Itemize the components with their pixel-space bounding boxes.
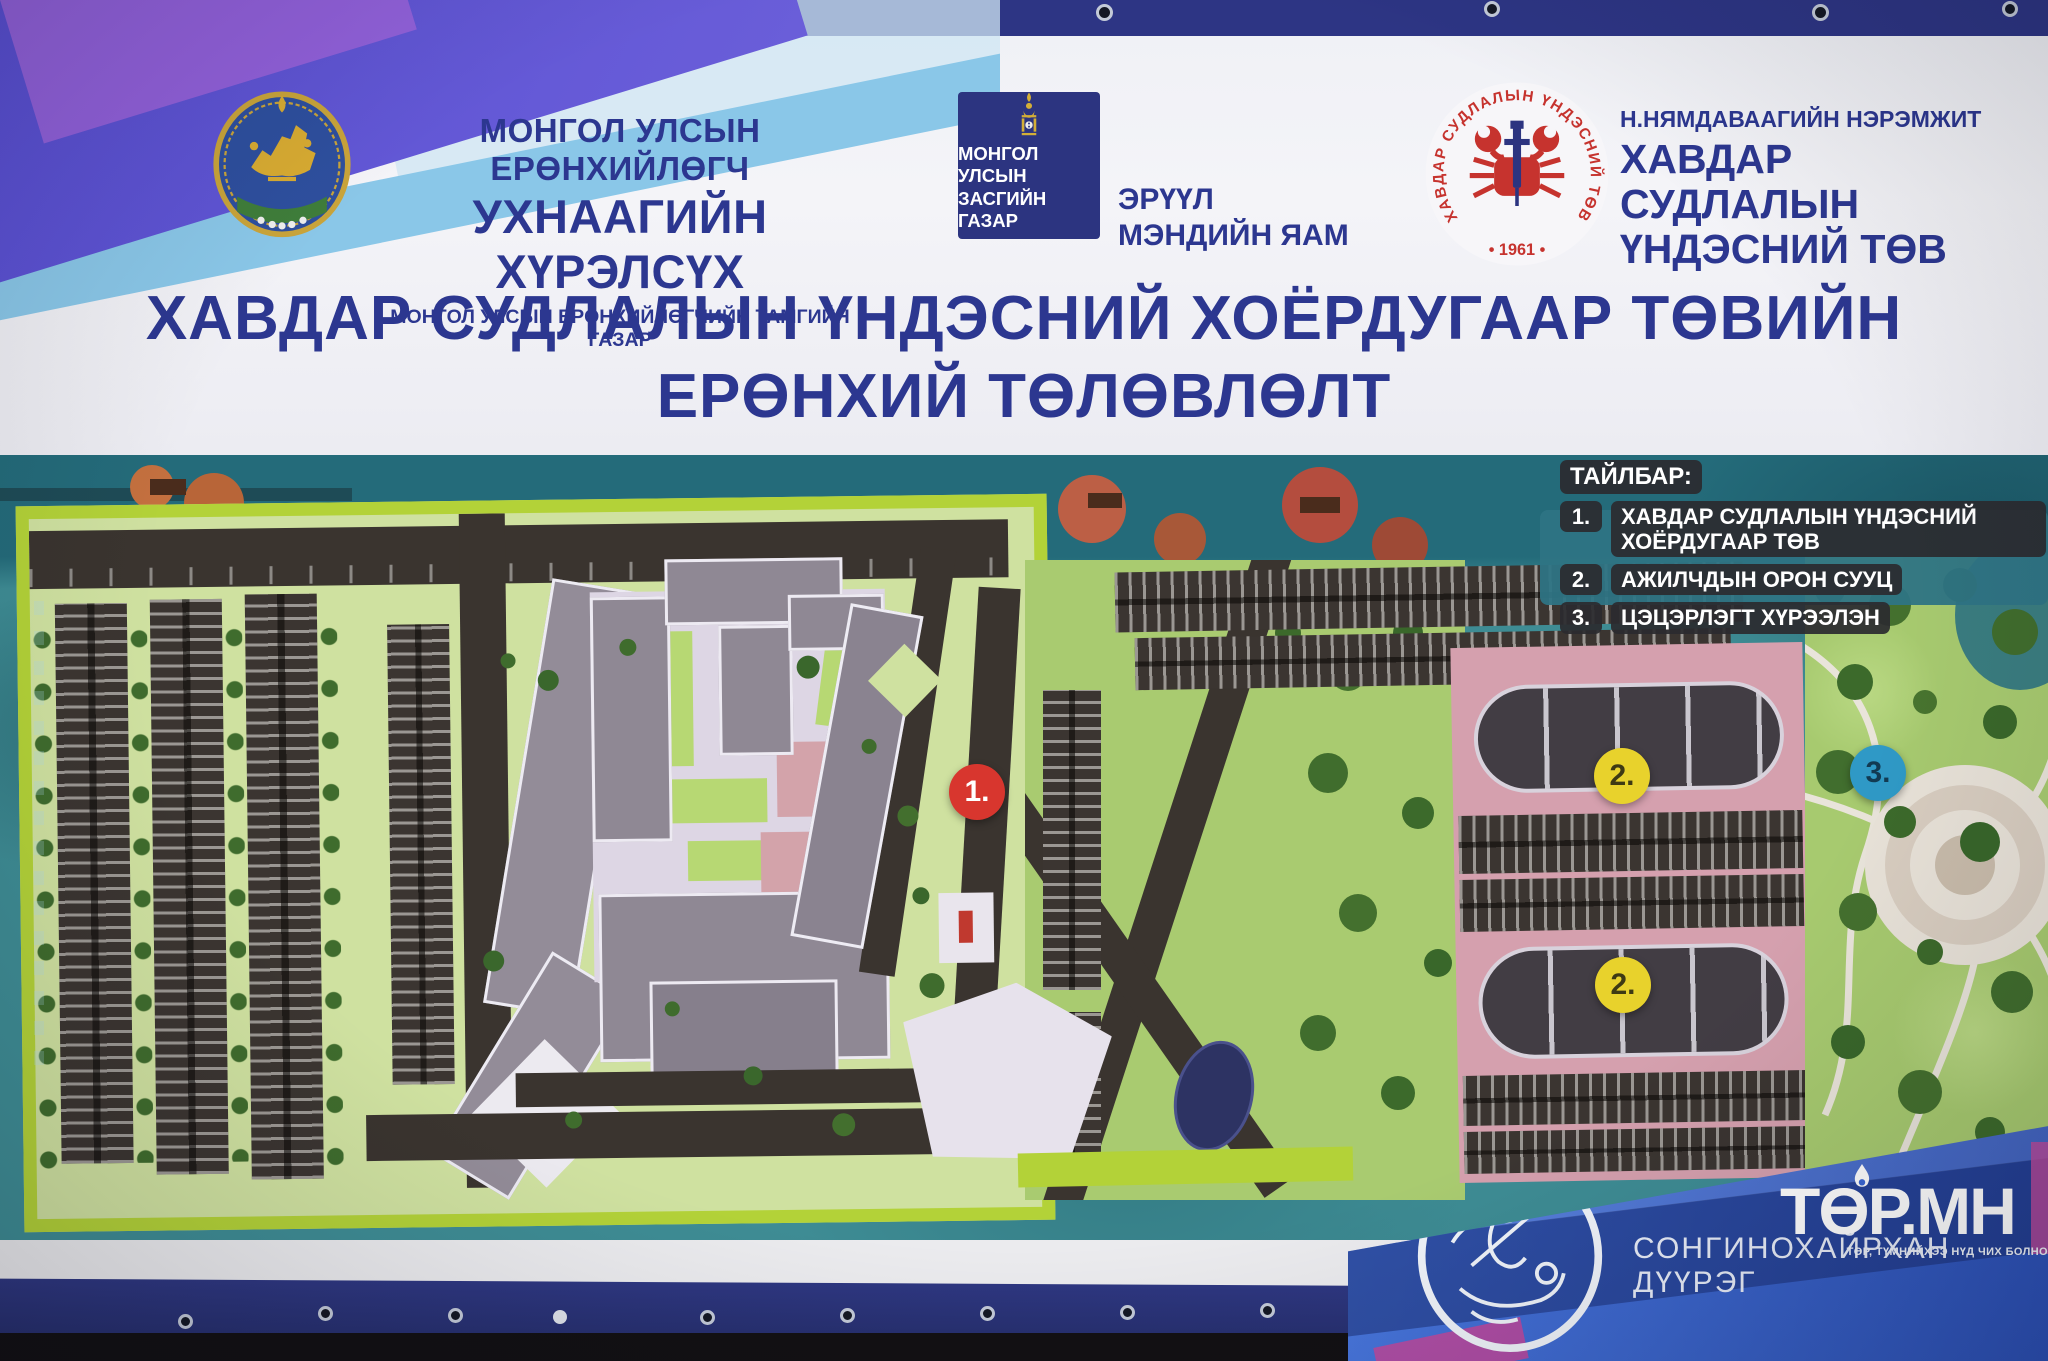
helipad-mark bbox=[959, 911, 973, 943]
grommet bbox=[1260, 1303, 1275, 1318]
government-logo-line2: ЗАСГИЙН ГАЗАР bbox=[958, 188, 1100, 232]
marker-3: 3. bbox=[1850, 745, 1906, 801]
president-office-line1: МОНГОЛ УЛСЫН ЕРӨНХИЙЛӨГЧ bbox=[360, 112, 880, 188]
lawn-patch bbox=[672, 778, 768, 823]
tree-shadow-mark bbox=[1300, 497, 1340, 513]
grommet bbox=[178, 1314, 193, 1329]
residential-area bbox=[1450, 642, 1811, 1183]
flame-icon bbox=[1852, 1164, 1872, 1192]
legend-item-number: 3. bbox=[1560, 602, 1602, 633]
legend-item: 2. АЖИЛЧДЫН ОРОН СУУЦ bbox=[1560, 564, 2046, 595]
helipad bbox=[938, 892, 994, 963]
marker-1: 1. bbox=[949, 764, 1005, 820]
cancer-center-block: Н.НЯМДАВААГИЙН НЭРЭМЖИТ ХАВДАР СУДЛАЛЫН … bbox=[1620, 106, 2040, 272]
grommet bbox=[1484, 1, 1500, 17]
parking-strip bbox=[1459, 874, 1804, 932]
parking-strip bbox=[245, 594, 324, 1180]
parking-strip bbox=[150, 599, 229, 1175]
legend-item-label: АЖИЛЧДЫН ОРОН СУУЦ bbox=[1611, 564, 1902, 595]
grommet bbox=[980, 1306, 995, 1321]
grommet bbox=[700, 1310, 715, 1325]
parking-strip bbox=[1464, 1126, 1809, 1174]
cancer-center-logo: ХАВДАР СУДЛАЛЫН ҮНДЭСНИЙ ТӨВ • 1961 • bbox=[1423, 80, 1611, 268]
campus-area bbox=[16, 494, 1056, 1233]
ministry-of-health-block: ЭРҮҮЛ МЭНДИЙН ЯАМ bbox=[1118, 182, 1378, 254]
grommet bbox=[448, 1308, 463, 1323]
building bbox=[590, 596, 673, 842]
marker-2a: 2. bbox=[1594, 748, 1650, 804]
legend: ТАЙЛБАР: 1. ХАВДАР СУДЛАЛЫН ҮНДЭСНИЙ ХОЁ… bbox=[1560, 460, 2046, 634]
tree-shadow-mark bbox=[150, 479, 186, 495]
parking-strip bbox=[387, 624, 455, 1085]
building bbox=[718, 625, 794, 756]
screw-fastener bbox=[553, 1310, 567, 1324]
legend-item-label: ЦЭЦЭРЛЭГТ ХҮРЭЭЛЭН bbox=[1611, 602, 1890, 633]
state-emblem-logo bbox=[212, 90, 352, 240]
ministry-line1: ЭРҮҮЛ bbox=[1118, 182, 1378, 218]
legend-item-label: ХАВДАР СУДЛАЛЫН ҮНДЭСНИЙ ХОЁРДУГААР ТӨВ bbox=[1611, 501, 2046, 558]
tree-shadow-mark bbox=[1088, 493, 1122, 508]
legend-item: 3. ЦЭЦЭРЛЭГТ ХҮРЭЭЛЭН bbox=[1560, 602, 2046, 633]
tree-cluster bbox=[500, 653, 515, 668]
legend-item-number: 1. bbox=[1560, 501, 1602, 532]
state-emblem-graphic bbox=[212, 90, 352, 240]
cancer-center-line1: Н.НЯМДАВААГИЙН НЭРЭМЖИТ bbox=[1620, 106, 2040, 133]
crab-icon bbox=[1470, 121, 1565, 206]
grommet bbox=[840, 1308, 855, 1323]
grommet bbox=[2002, 1, 2018, 17]
parking-strip bbox=[55, 603, 134, 1164]
soyombo-icon bbox=[1008, 92, 1050, 138]
banner-title-line1: ХАВДАР СУДЛАЛЫН ҮНДЭСНИЙ ХОЁРДУГААР ТӨВИ… bbox=[0, 283, 2048, 354]
grommet bbox=[1096, 4, 1113, 21]
cancer-center-line3: ҮНДЭСНИЙ ТӨВ bbox=[1620, 227, 2040, 272]
parking-strip bbox=[1043, 690, 1101, 990]
banner-title-line2: ЕРӨНХИЙ ТӨЛӨВЛӨЛТ bbox=[0, 361, 2048, 432]
legend-title: ТАЙЛБАР: bbox=[1560, 460, 1702, 494]
site-border-strip bbox=[1018, 1146, 1354, 1187]
government-logo: МОНГОЛ УЛСЫН ЗАСГИЙН ГАЗАР bbox=[958, 92, 1100, 239]
cancer-logo-year: • 1961 • bbox=[1489, 241, 1546, 259]
road bbox=[366, 1107, 1016, 1161]
government-logo-line1: МОНГОЛ УЛСЫН bbox=[958, 143, 1100, 187]
grommet bbox=[318, 1306, 333, 1321]
parking-strip bbox=[1458, 810, 1803, 874]
tor-mn-watermark: ТӨР.МН ТӨР, ТҮМНИЙХЭЭ НҮД ЧИХ БОЛНО bbox=[1780, 1178, 2048, 1258]
site-plan-map: ТАЙЛБАР: 1. ХАВДАР СУДЛАЛЫН ҮНДЭСНИЙ ХОЁ… bbox=[0, 455, 2048, 1240]
cancer-center-logo-graphic: ХАВДАР СУДЛАЛЫН ҮНДЭСНИЙ ТӨВ • 1961 • bbox=[1423, 80, 1611, 268]
watermark-brand: ТӨР.МН bbox=[1780, 1178, 2048, 1244]
grommet bbox=[1812, 4, 1829, 21]
cancer-center-line2: ХАВДАР СУДЛАЛЫН bbox=[1620, 137, 2040, 227]
side-watermark-text bbox=[34, 595, 44, 1065]
parking-strip bbox=[1463, 1070, 1808, 1126]
legend-item-number: 2. bbox=[1560, 564, 1602, 595]
marker-2b: 2. bbox=[1595, 957, 1651, 1013]
road bbox=[516, 1068, 936, 1107]
legend-item: 1. ХАВДАР СУДЛАЛЫН ҮНДЭСНИЙ ХОЁРДУГААР Т… bbox=[1560, 501, 2046, 558]
ministry-line2: МЭНДИЙН ЯАМ bbox=[1118, 218, 1378, 254]
grommet bbox=[1120, 1305, 1135, 1320]
